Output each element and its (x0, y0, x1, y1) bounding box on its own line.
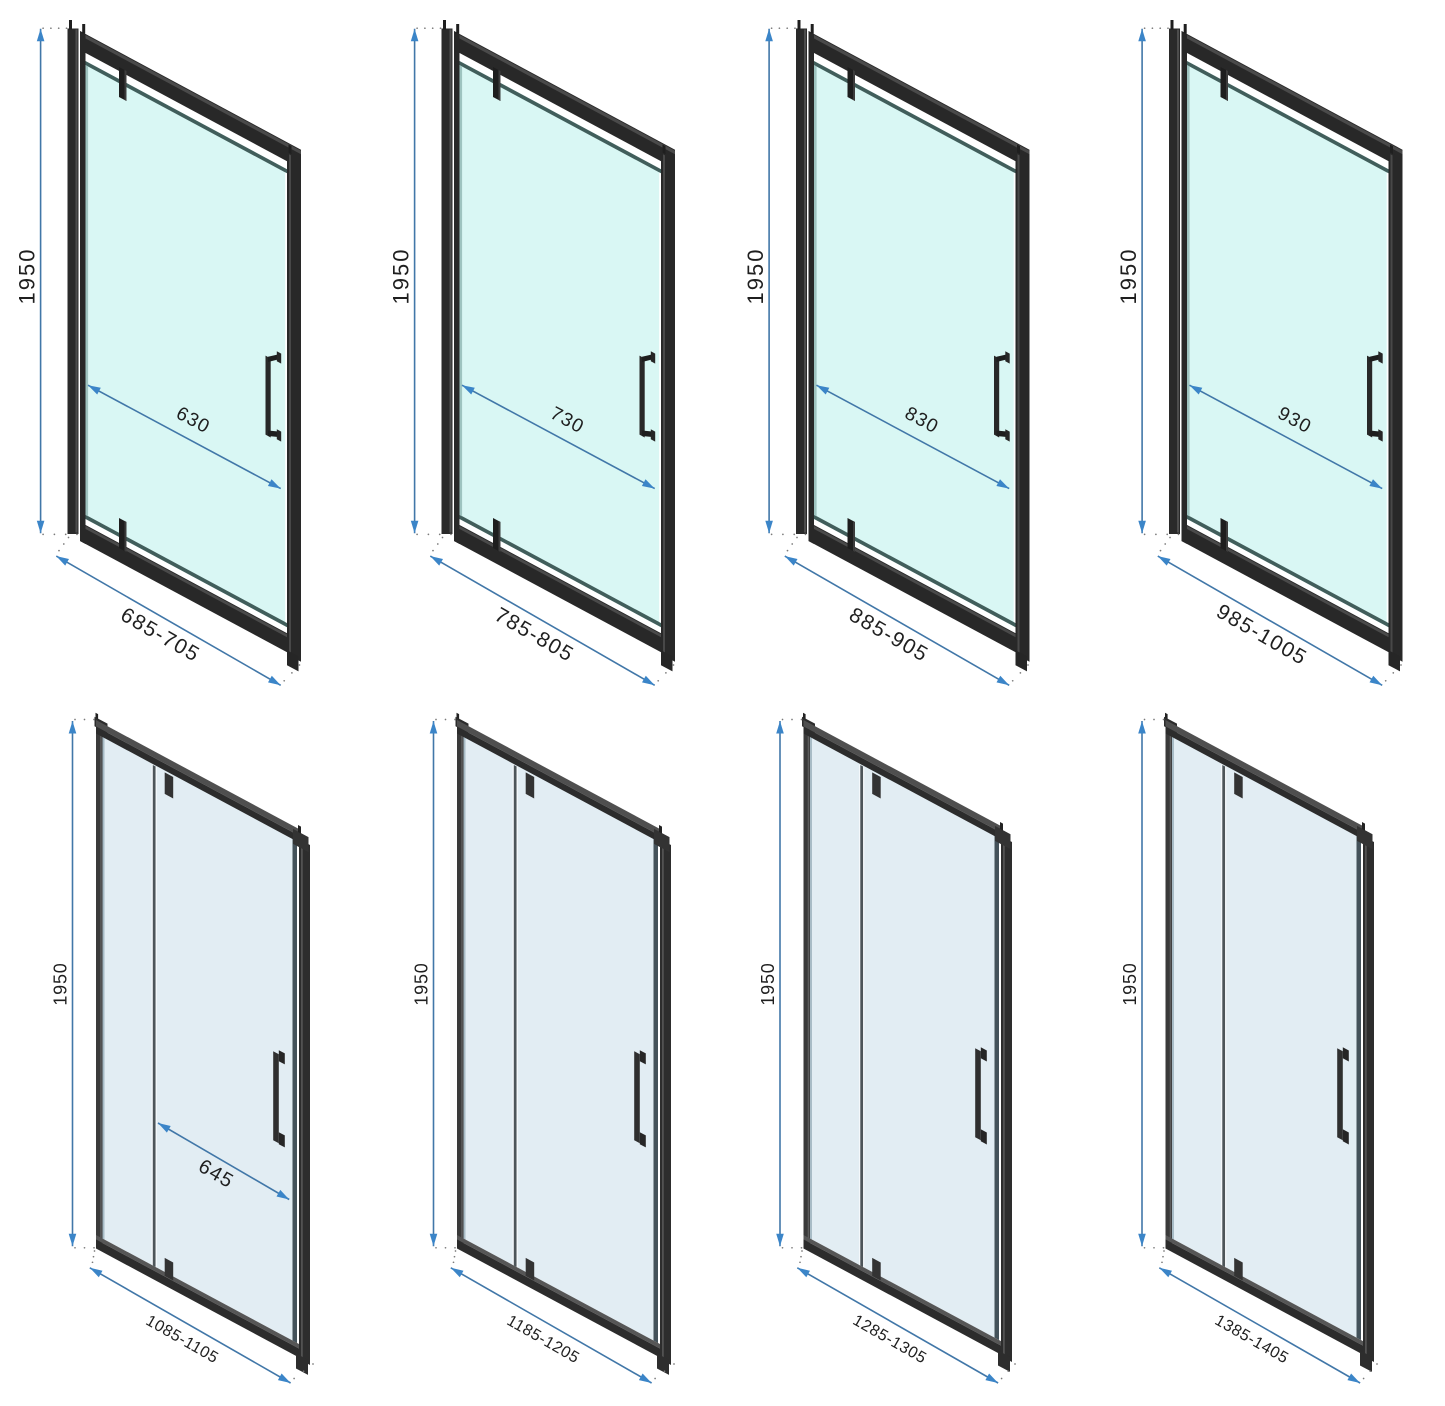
svg-text:1950: 1950 (758, 962, 778, 1005)
svg-text:1950: 1950 (1116, 248, 1141, 305)
svg-text:1950: 1950 (14, 248, 39, 305)
svg-text:1950: 1950 (412, 962, 432, 1005)
svg-text:1950: 1950 (388, 248, 413, 305)
svg-text:1950: 1950 (743, 248, 768, 305)
svg-text:1950: 1950 (1120, 962, 1140, 1005)
svg-text:1950: 1950 (51, 962, 71, 1005)
